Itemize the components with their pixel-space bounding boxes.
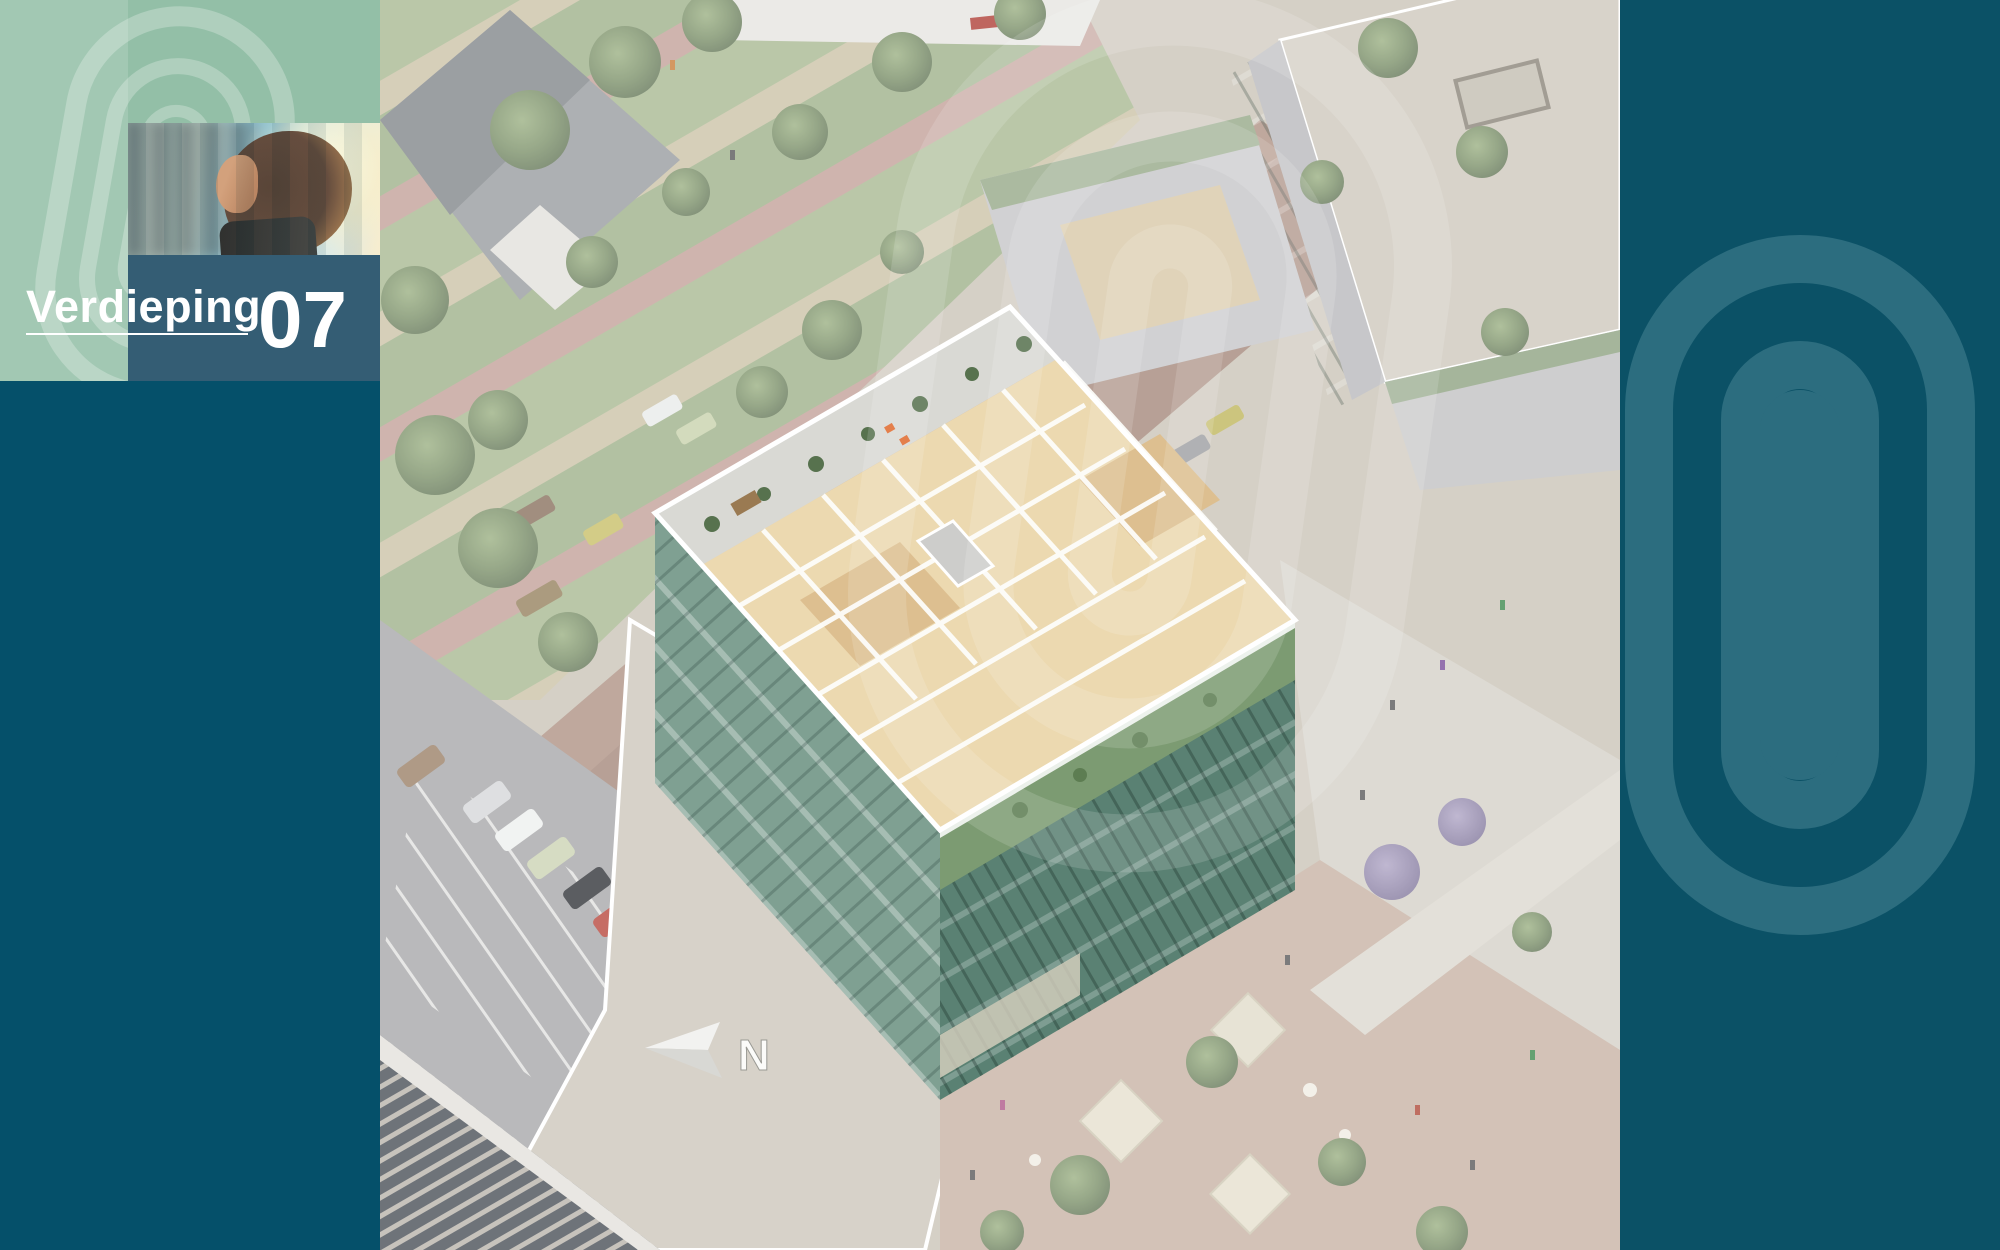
sidebar-header: Verdieping 07: [0, 0, 380, 381]
sidebar: Verdieping 07: [0, 0, 380, 1250]
compass-label: N: [738, 1031, 770, 1080]
floor-label-underline: [26, 333, 248, 335]
photo-watermark-stripes: [128, 123, 380, 255]
band-watermark-icon: [1620, 0, 2000, 1250]
aerial-map: N: [380, 0, 1620, 1250]
page: Verdieping 07: [0, 0, 2000, 1250]
floor-label: Verdieping: [26, 281, 261, 333]
right-band: [1620, 0, 2000, 1250]
aerial-render: N: [380, 0, 1620, 1250]
woman-photo: [128, 123, 380, 255]
floor-number: 07: [258, 280, 347, 360]
